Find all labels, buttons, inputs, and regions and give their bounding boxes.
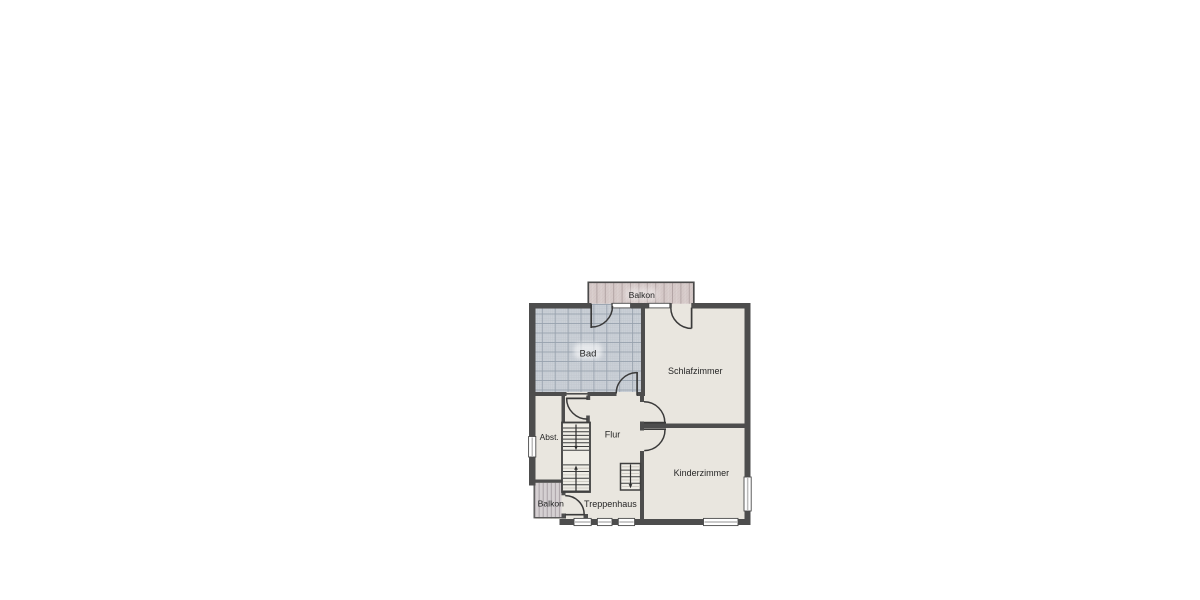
- svg-text:Balkon: Balkon: [538, 498, 564, 508]
- svg-text:Schlafzimmer: Schlafzimmer: [668, 366, 723, 376]
- svg-text:Kinderzimmer: Kinderzimmer: [674, 468, 730, 478]
- svg-text:Bad: Bad: [580, 348, 597, 359]
- svg-text:Abst.: Abst.: [540, 432, 559, 442]
- svg-text:Flur: Flur: [605, 430, 621, 440]
- svg-text:Treppenhaus: Treppenhaus: [584, 499, 637, 509]
- svg-text:Balkon: Balkon: [629, 290, 655, 300]
